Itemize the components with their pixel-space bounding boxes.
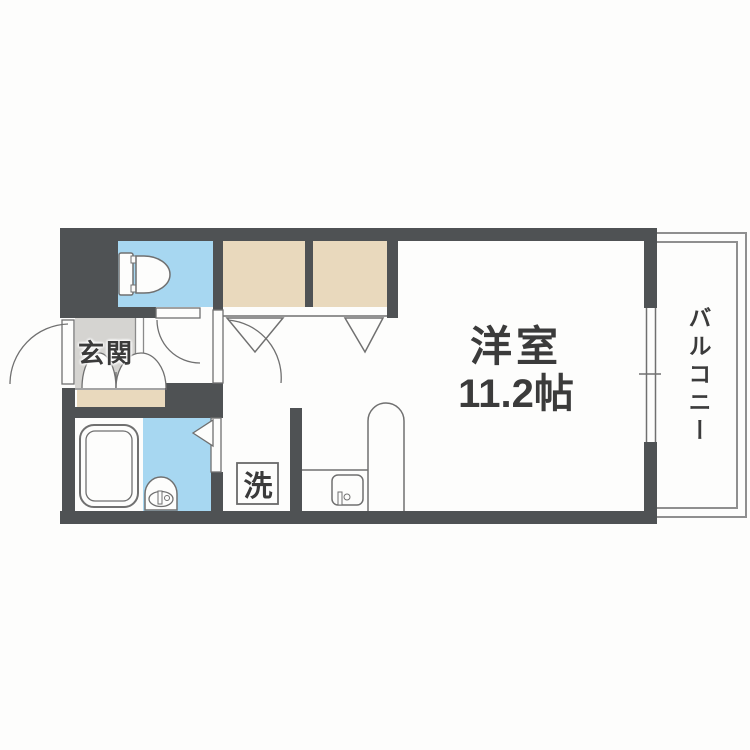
toilet-door-icon <box>156 308 200 363</box>
main-room-size: 11.2帖 <box>458 371 574 417</box>
toilet-icon <box>119 253 170 295</box>
bathtub-icon <box>80 425 138 507</box>
main-room-name: 洋室 <box>458 323 574 371</box>
floor-plan-canvas: 玄関 洋室 11.2帖 バルコニー 洗 <box>0 0 750 750</box>
front-door-icon <box>10 320 74 384</box>
washroom-door-icon <box>193 418 221 472</box>
balcony-label: バルコニー <box>681 306 715 446</box>
window-icon <box>639 308 661 442</box>
main-room-label: 洋室 11.2帖 <box>458 323 574 417</box>
washbasin-icon <box>145 477 177 510</box>
laundry-label: 洗 <box>243 463 272 505</box>
fixtures-overlay <box>0 0 750 750</box>
closet-track <box>223 307 387 318</box>
folding-door-icon-2 <box>345 318 383 352</box>
folding-door-icon-1 <box>227 318 283 352</box>
entrance-label: 玄関 <box>78 334 134 371</box>
kitchen-counter-unit <box>368 403 404 511</box>
kitchen-sink-icon <box>302 470 368 505</box>
